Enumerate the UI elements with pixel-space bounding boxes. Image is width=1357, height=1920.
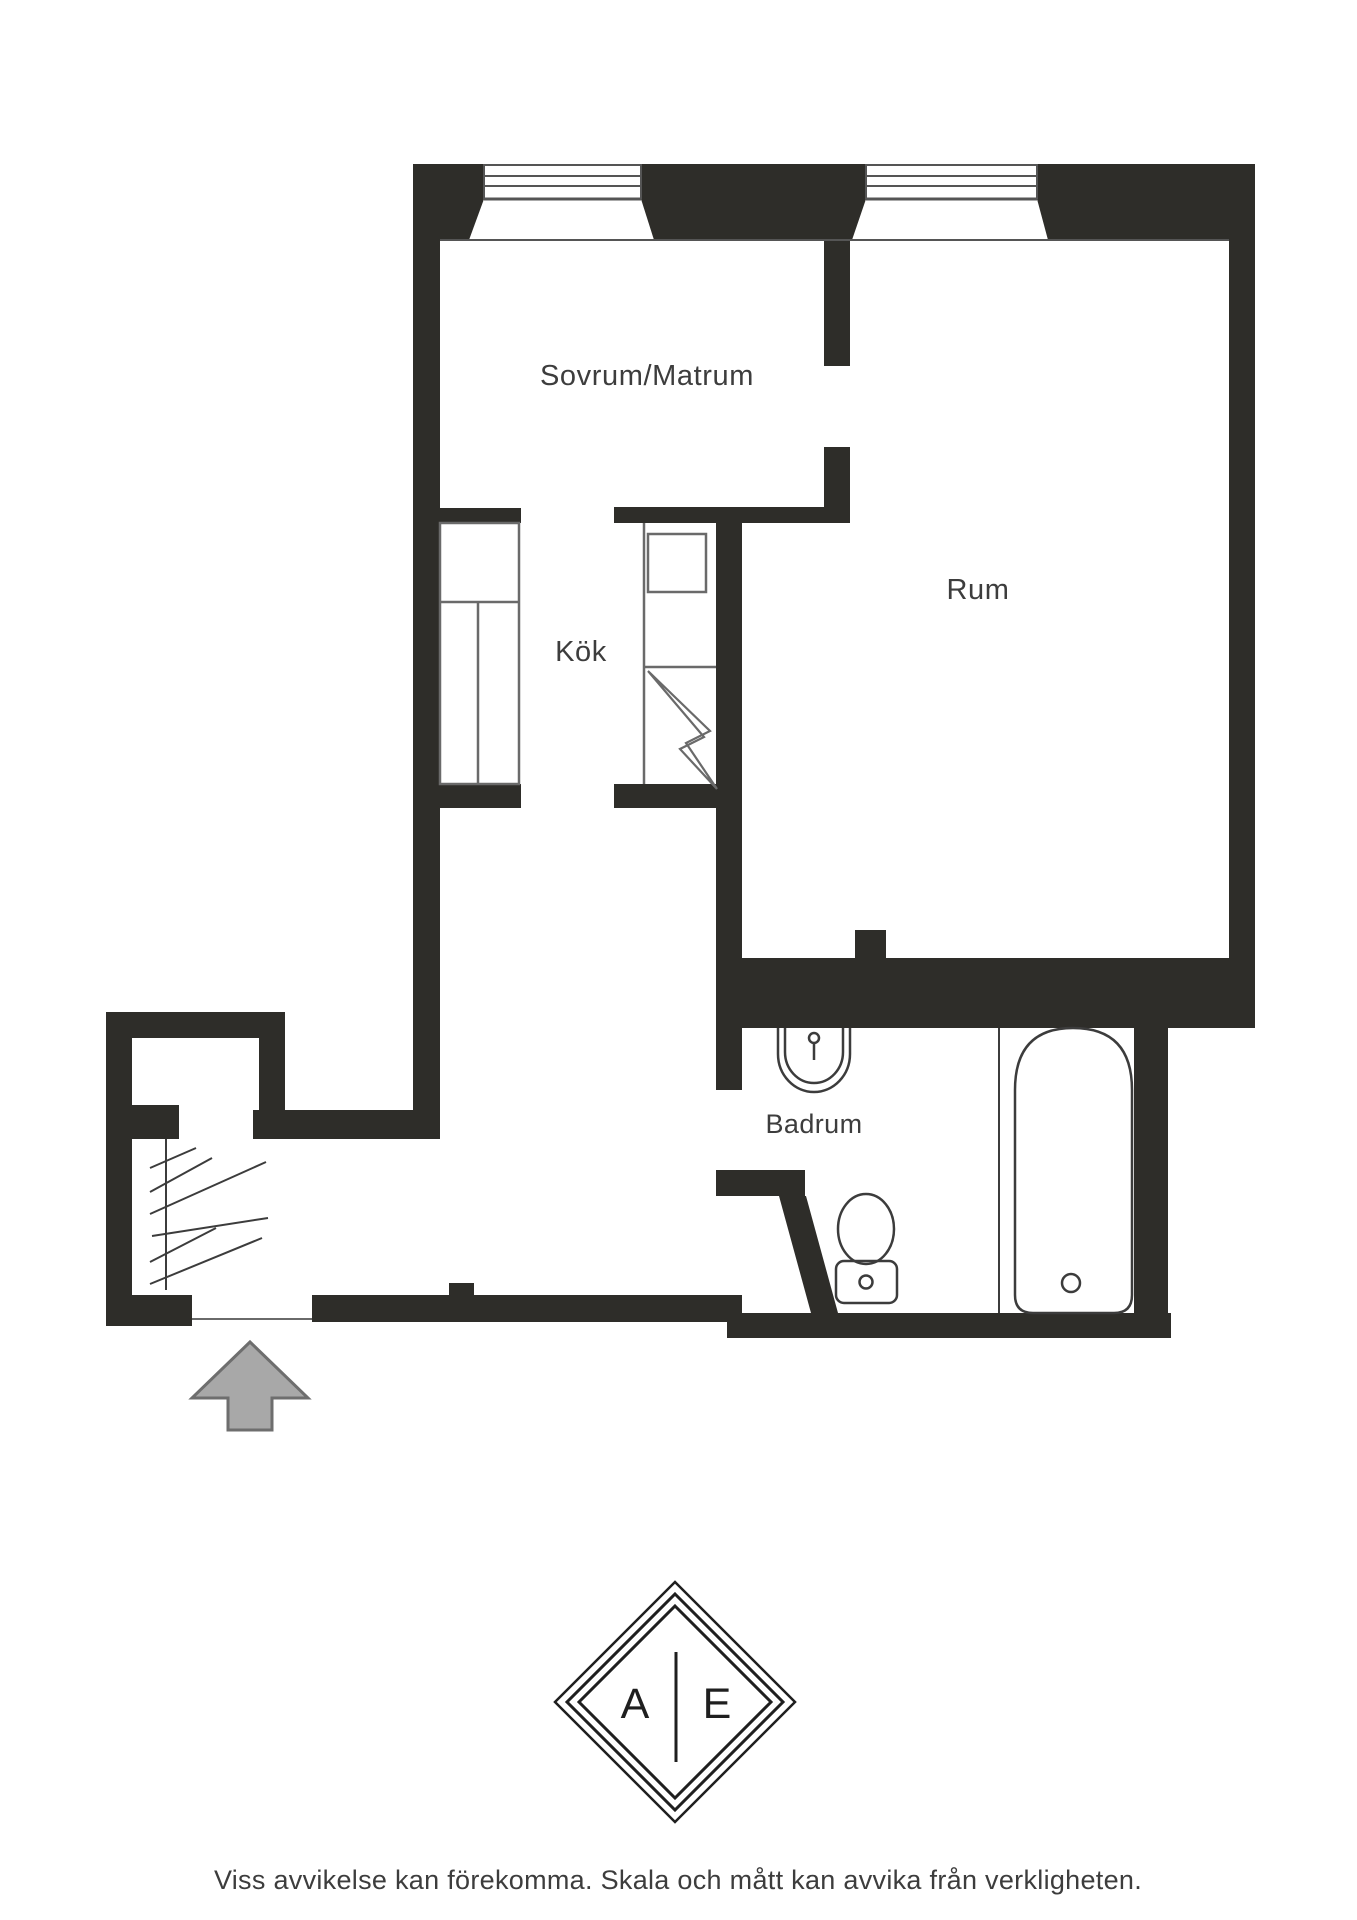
wall-kitchen-bottom-left-stub bbox=[440, 784, 521, 808]
logo-letter-a: A bbox=[621, 1680, 650, 1728]
kitchen-counter-icon bbox=[644, 523, 717, 789]
oven-icon bbox=[648, 534, 706, 592]
room-label-rum: Rum bbox=[946, 574, 1009, 606]
floor-plan-drawing: Sovrum/Matrum Rum Kök Badrum A E Viss av… bbox=[0, 0, 1357, 1920]
wall-hallway-top bbox=[106, 1012, 285, 1038]
wall-rum-bottom-tab bbox=[855, 930, 886, 958]
wall-bathroom-left-upper bbox=[716, 1028, 742, 1090]
wall-bathroom-diagonal bbox=[779, 1196, 838, 1313]
room-label-kok: Kök bbox=[555, 636, 607, 668]
wall-partition-upper bbox=[824, 240, 850, 366]
wall-bathroom-right bbox=[1134, 1028, 1168, 1338]
wall-corridor-top bbox=[253, 1110, 440, 1139]
logo-letter-e: E bbox=[703, 1680, 732, 1728]
wall-bathroom-door-stub bbox=[716, 1170, 805, 1196]
room-label-sovrum-matrum: Sovrum/Matrum bbox=[540, 360, 754, 392]
entrance-arrow-icon bbox=[192, 1342, 308, 1430]
wall-top-right-block bbox=[1037, 164, 1255, 240]
bathtub-icon bbox=[1015, 1028, 1132, 1313]
wall-corridor-bottom-tab bbox=[449, 1283, 474, 1297]
wall-kitchen-top-right bbox=[614, 507, 850, 523]
wall-kitchen-top-left-stub bbox=[440, 508, 521, 523]
stove-lightning-icon bbox=[648, 671, 717, 789]
wall-kitchen-right bbox=[716, 523, 742, 1028]
window-icon bbox=[484, 164, 641, 199]
bathroom-fixtures bbox=[778, 1028, 1132, 1313]
window-icon bbox=[866, 164, 1037, 199]
wall-top-mid-pier bbox=[641, 164, 866, 240]
wall-right bbox=[1229, 164, 1255, 1028]
room-label-badrum: Badrum bbox=[766, 1109, 863, 1139]
sink-icon bbox=[778, 1028, 850, 1092]
floor-plan-page: Sovrum/Matrum Rum Kök Badrum A E Viss av… bbox=[0, 0, 1357, 1920]
wall-corridor-bottom bbox=[312, 1295, 742, 1322]
wall-hallway-bottom-block bbox=[106, 1295, 192, 1326]
toilet-icon bbox=[836, 1194, 897, 1303]
wardrobe-hangers-icon bbox=[150, 1139, 268, 1290]
wall-kitchen-bottom-right-stub bbox=[614, 784, 716, 808]
logo-diamond bbox=[555, 1582, 795, 1822]
wall-hallway-left bbox=[106, 1012, 132, 1326]
wall-bathroom-bottom bbox=[727, 1313, 1171, 1338]
wall-rum-bottom bbox=[716, 958, 1255, 1028]
cabinet-icon bbox=[440, 523, 519, 784]
disclaimer-text: Viss avvikelse kan förekomma. Skala och … bbox=[214, 1865, 1142, 1895]
wall-left bbox=[413, 164, 440, 1139]
wall-closet-stub bbox=[132, 1105, 179, 1139]
